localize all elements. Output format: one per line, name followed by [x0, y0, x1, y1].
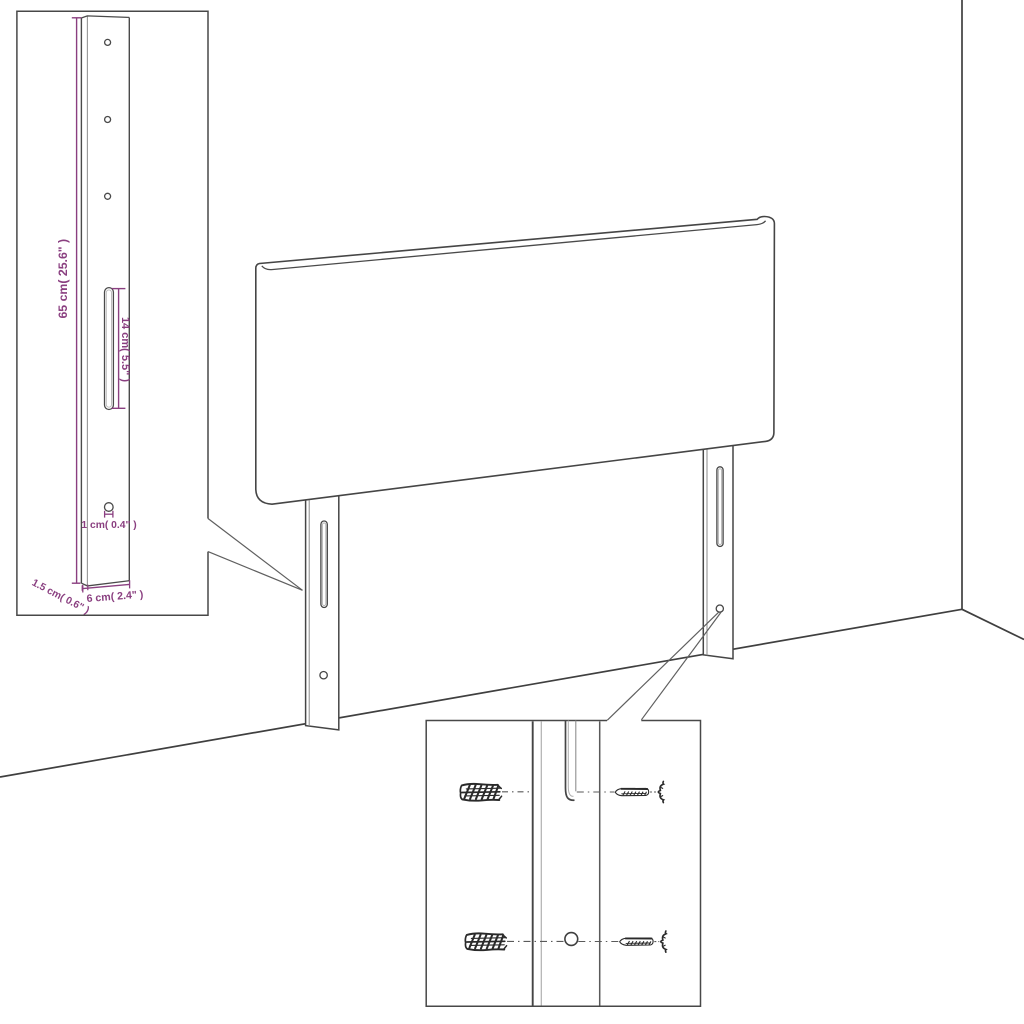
svg-text:14 cm( 5.5" ): 14 cm( 5.5" ) — [119, 317, 131, 382]
svg-text:65 cm( 25.6" ): 65 cm( 25.6" ) — [56, 239, 70, 319]
svg-text:1 cm( 0.4" ): 1 cm( 0.4" ) — [81, 520, 136, 531]
